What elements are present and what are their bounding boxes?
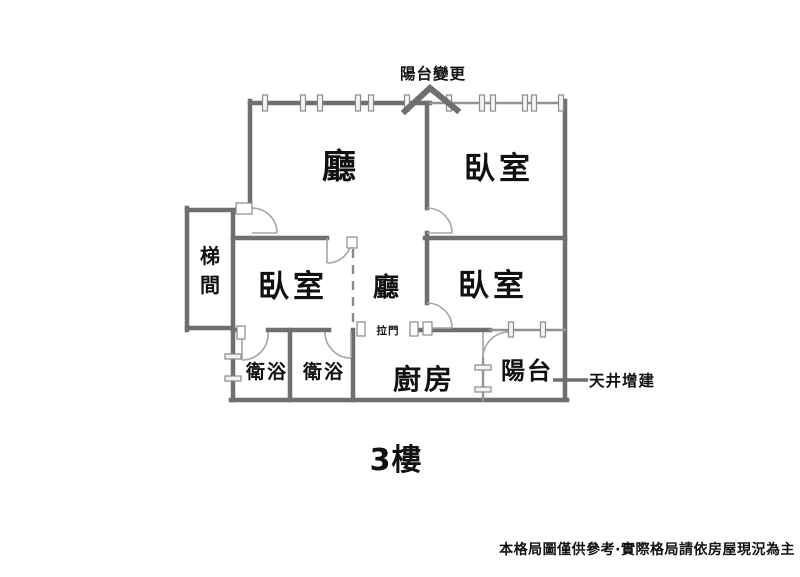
annotation-labels: 拉門 陽台變更 天井增建 — [377, 64, 656, 390]
room-labels: 廳 臥室 臥室 廳 臥室 梯 間 衛浴 衛浴 廚房 陽台 — [200, 147, 553, 396]
label-bedroom-top-right: 臥室 — [464, 151, 534, 187]
floor-plan-canvas: 廳 臥室 臥室 廳 臥室 梯 間 衛浴 衛浴 廚房 陽台 拉門 陽台變更 天井增… — [0, 0, 800, 577]
label-balcony: 陽台 — [501, 357, 553, 385]
window-tick — [318, 95, 323, 111]
entry-door-arc — [252, 208, 277, 233]
window-tick — [301, 95, 306, 111]
window-tick-balcony — [509, 322, 514, 337]
label-bathroom-right: 衛浴 — [302, 360, 345, 383]
disclaimer-text: 本格局圖僅供參考·實際格局請依房屋現況為主 — [499, 541, 795, 558]
window-tick — [356, 95, 361, 111]
label-hall: 廳 — [373, 272, 399, 303]
label-living-room: 廳 — [322, 147, 356, 187]
window-ticks — [225, 95, 564, 392]
sliding-door-jamb-right — [410, 322, 418, 336]
label-sliding-door: 拉門 — [377, 324, 400, 337]
label-stairwell-char-2: 間 — [200, 273, 220, 297]
window-tick-kitchen-divider — [475, 387, 491, 392]
balcony-door-arc — [483, 332, 509, 358]
label-kitchen: 廚房 — [393, 363, 455, 396]
label-bedroom-mid-right: 臥室 — [458, 268, 528, 304]
window-tick — [559, 95, 564, 111]
bedroom-mid-right-door-jamb — [423, 322, 432, 335]
bathroom-left-jamb — [237, 326, 245, 339]
bathroom-left-door-arc — [242, 332, 268, 360]
partition-jamb — [347, 237, 357, 248]
entry-door-jamb — [236, 203, 252, 214]
floorplan-page: 廳 臥室 臥室 廳 臥室 梯 間 衛浴 衛浴 廚房 陽台 拉門 陽台變更 天井增… — [0, 0, 800, 577]
label-bathroom-left: 衛浴 — [245, 360, 288, 383]
label-bedroom-mid-left: 臥室 — [258, 269, 328, 305]
window-tick — [369, 95, 374, 111]
floor-title: 3樓 — [370, 443, 423, 478]
label-balcony-change: 陽台變更 — [400, 64, 466, 83]
window-tick — [532, 95, 537, 111]
window-tick-kitchen-divider — [475, 365, 491, 370]
window-tick-leftwall — [225, 354, 241, 359]
bathroom-right-door-arc — [325, 332, 351, 358]
window-tick — [491, 95, 496, 111]
window-tick-balcony — [541, 322, 546, 337]
sliding-door-jamb-left — [357, 322, 365, 336]
window-tick — [480, 95, 485, 111]
window-tick — [263, 95, 268, 111]
walls — [187, 101, 567, 400]
bedroom-top-right-door-arc — [427, 208, 452, 233]
window-tick — [523, 95, 528, 111]
label-stairwell-char-1: 梯 — [200, 244, 220, 268]
window-tick-leftwall — [225, 376, 241, 381]
label-lightwell-addition: 天井增建 — [589, 371, 655, 390]
